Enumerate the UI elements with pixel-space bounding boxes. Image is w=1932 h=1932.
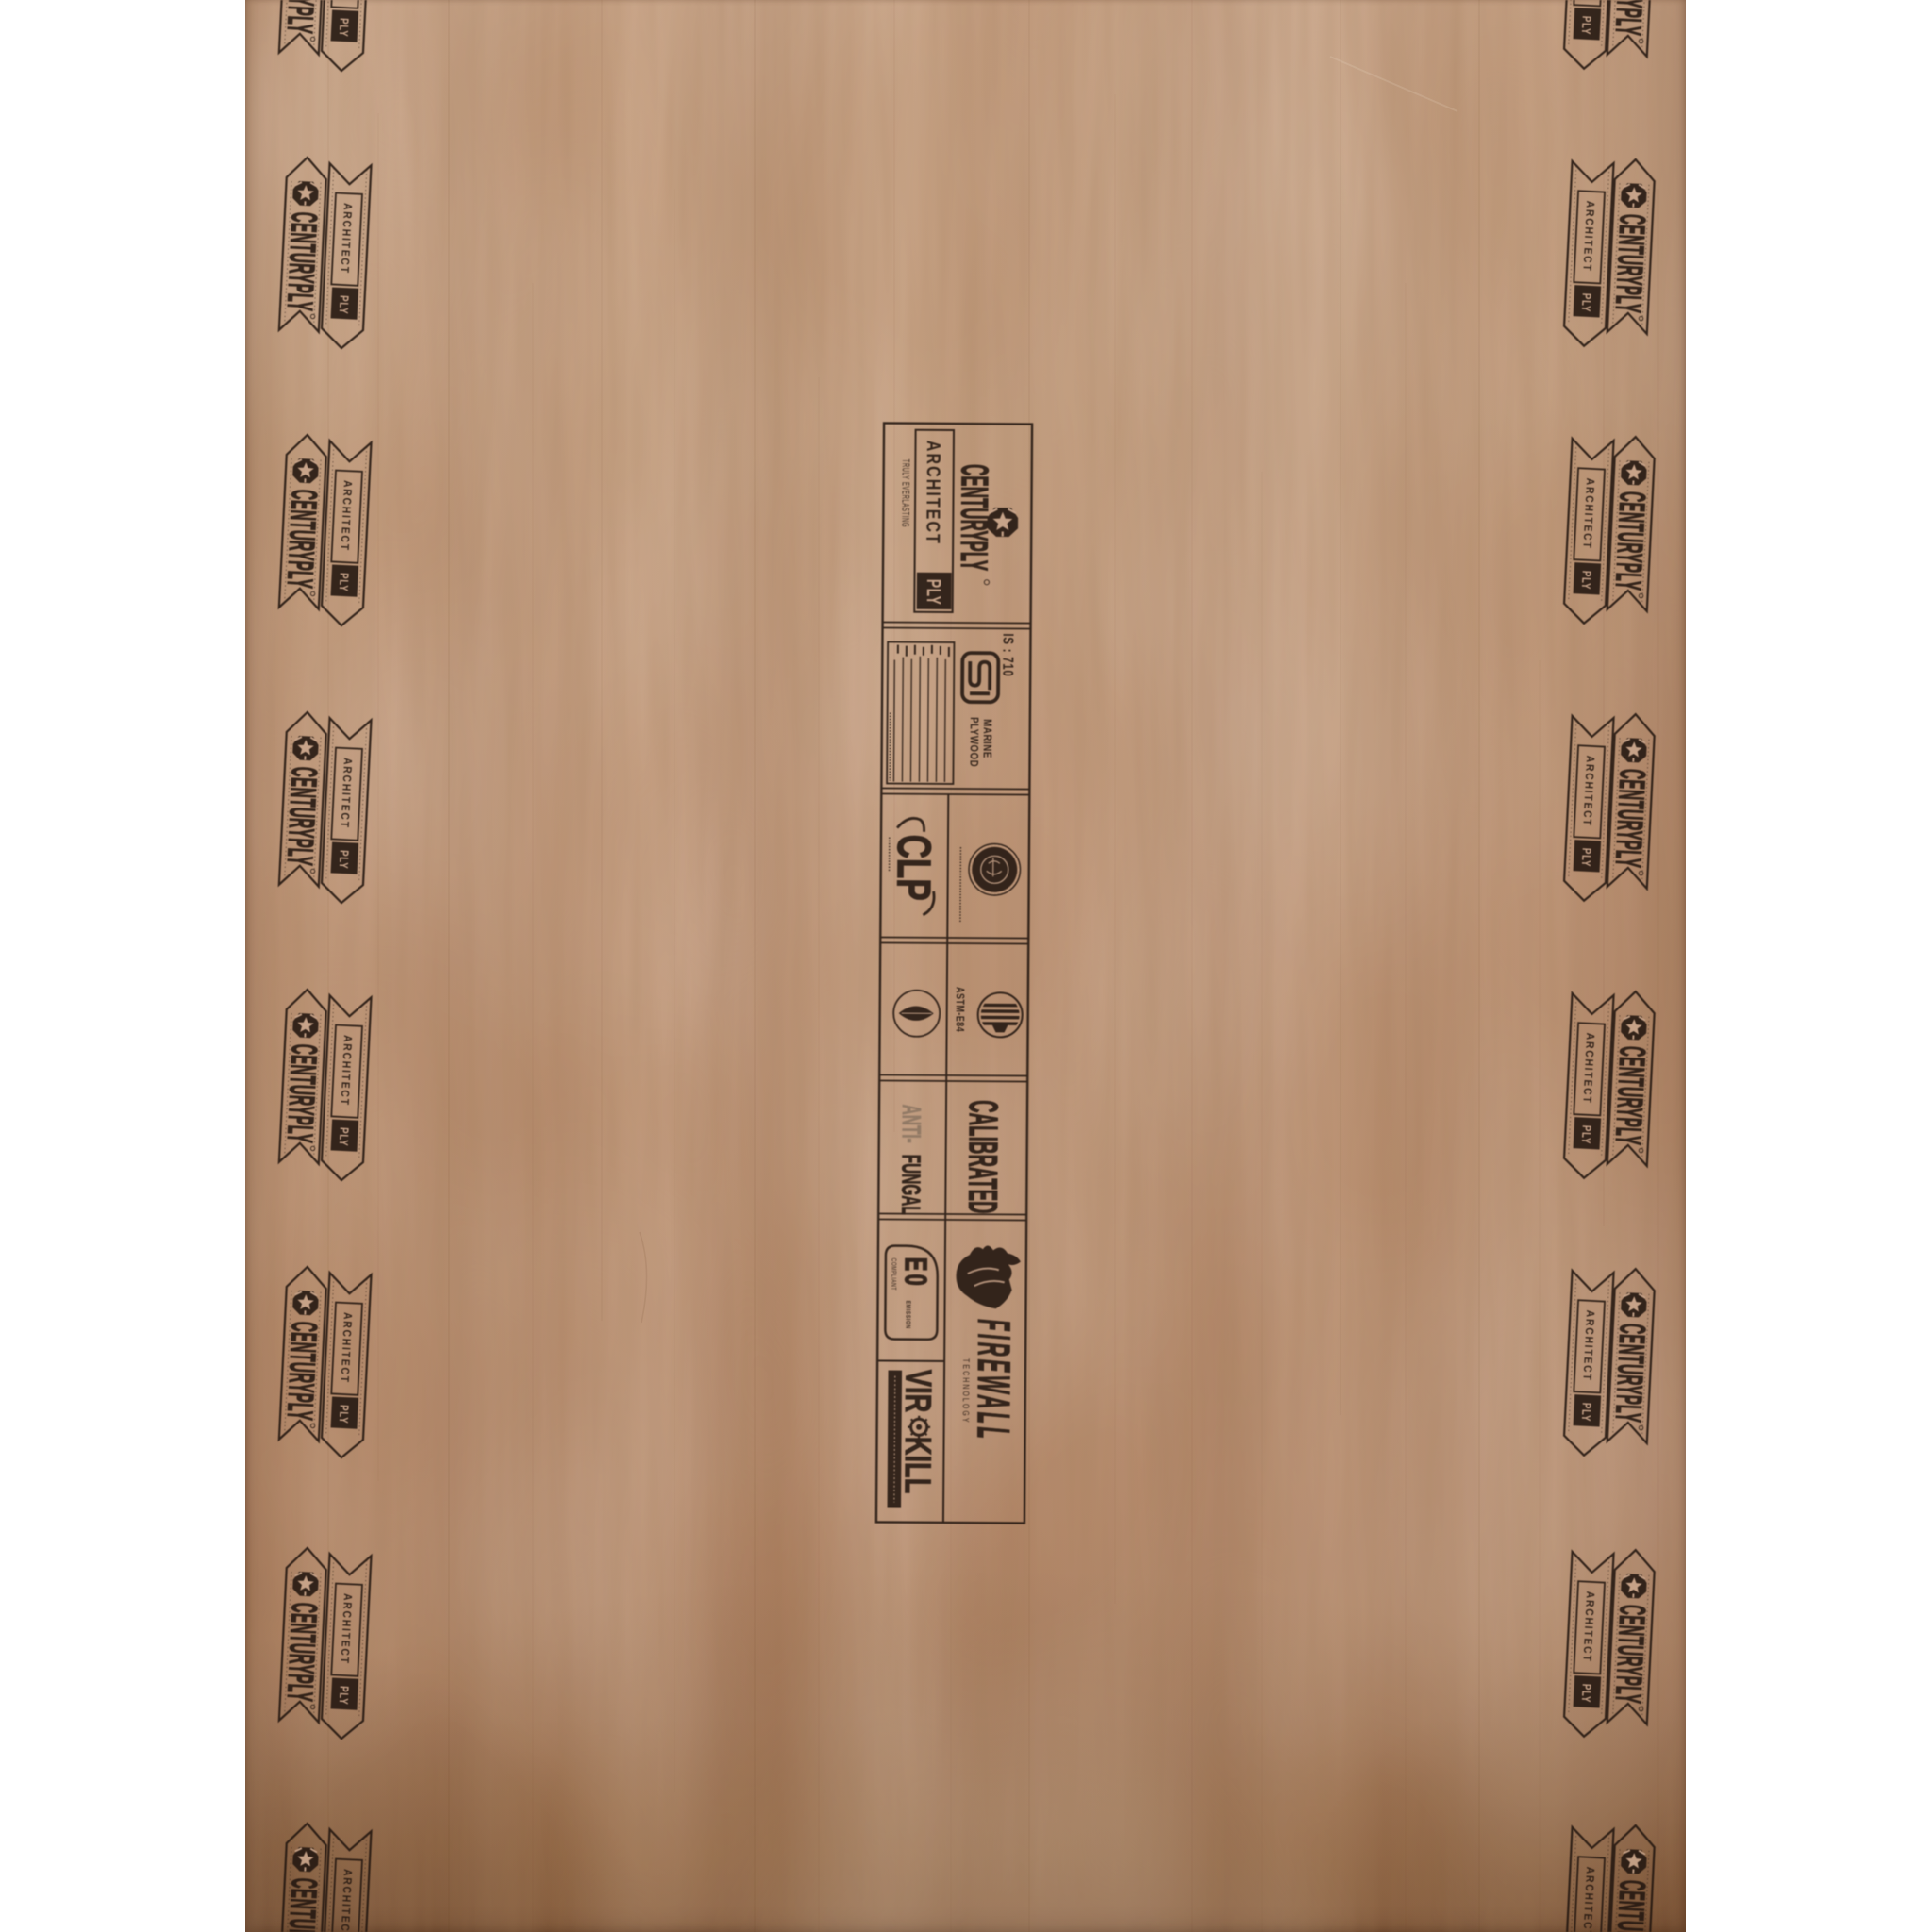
svg-text:CLP: CLP xyxy=(887,835,940,901)
svg-text:E0: E0 xyxy=(899,1257,933,1290)
svg-text:VIR: VIR xyxy=(897,1370,938,1413)
svg-text:TRULY EVERLASTING: TRULY EVERLASTING xyxy=(900,459,912,528)
svg-text:KILL: KILL xyxy=(896,1437,937,1494)
svg-text:IS : 710: IS : 710 xyxy=(1000,633,1018,676)
svg-text:FUNGAL: FUNGAL xyxy=(896,1155,925,1215)
svg-text:MARINE: MARINE xyxy=(980,719,993,758)
svg-text:CALIBRATED: CALIBRATED xyxy=(959,1100,1006,1214)
svg-text:COMPLIANT: COMPLIANT xyxy=(890,1258,897,1291)
svg-text:ARCHITECT: ARCHITECT xyxy=(923,441,944,545)
svg-text:PLY: PLY xyxy=(923,579,945,606)
svg-text:TECHNOLOGY: TECHNOLOGY xyxy=(960,1358,971,1424)
svg-text:ASTM-E84: ASTM-E84 xyxy=(953,987,966,1032)
svg-text:PLYWOOD: PLYWOOD xyxy=(967,717,980,767)
svg-text:FIREWALL: FIREWALL xyxy=(968,1319,1019,1441)
svg-text:EMISSION: EMISSION xyxy=(904,1301,911,1329)
svg-text:ANTI-: ANTI- xyxy=(897,1105,926,1143)
